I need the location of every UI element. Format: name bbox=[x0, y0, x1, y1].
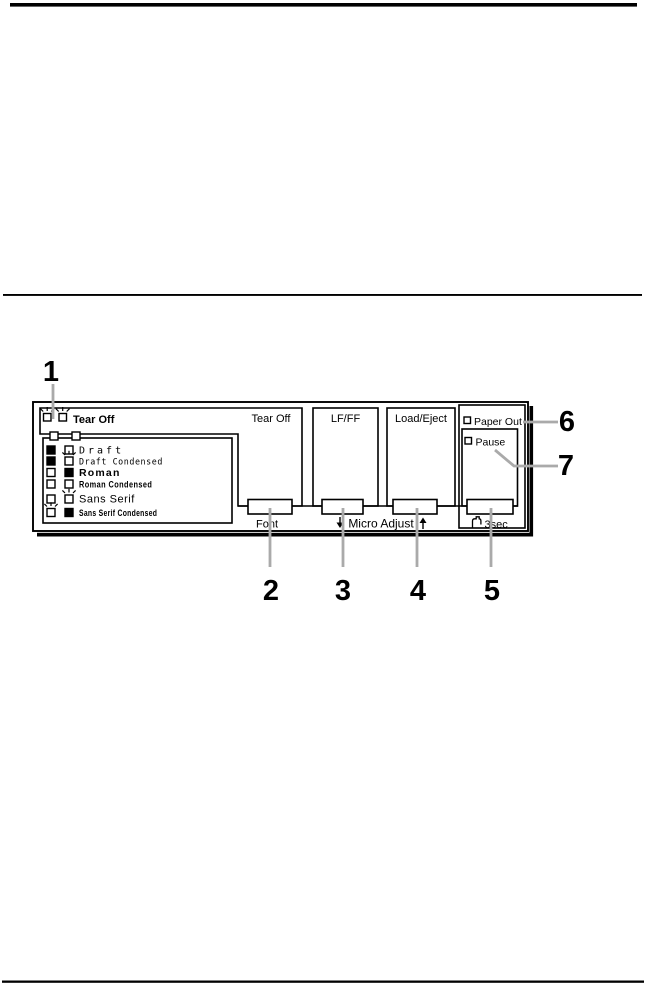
tear-off-led-2 bbox=[59, 414, 67, 422]
load-eject-button bbox=[393, 500, 437, 515]
font-row-label: Roman Condensed bbox=[79, 480, 152, 490]
font-row-led bbox=[65, 509, 73, 517]
bottom-rule bbox=[2, 981, 644, 983]
lf-ff-button-label: LF/FF bbox=[331, 413, 361, 425]
font-row-led bbox=[65, 495, 73, 503]
font-row-led bbox=[47, 446, 55, 454]
font-table-led-column-1-marker bbox=[50, 432, 58, 440]
font-row-label: Sans Serif bbox=[79, 494, 135, 506]
font-table-led-column-2-marker bbox=[72, 432, 80, 440]
font-row-label: Roman bbox=[79, 467, 121, 479]
panel-shadow-right bbox=[530, 406, 534, 537]
font-row-label: Sans Serif Condensed bbox=[79, 508, 157, 518]
font-row-led bbox=[47, 480, 55, 488]
font-row-led bbox=[47, 457, 55, 465]
hold-duration-label: 3sec bbox=[485, 519, 509, 531]
callout-number-3: 3 bbox=[335, 575, 351, 607]
tear-off-led-1 bbox=[44, 414, 52, 422]
tear-off-indicator-label: Tear Off bbox=[73, 414, 115, 426]
pause-led-label: Pause bbox=[476, 437, 506, 449]
section-rule bbox=[3, 294, 642, 296]
font-row-led bbox=[47, 509, 55, 517]
pause-led bbox=[465, 438, 472, 445]
font-sublabel: Font bbox=[256, 519, 278, 531]
font-row-led bbox=[47, 469, 55, 477]
font-row-led bbox=[65, 480, 73, 488]
panel-shadow-bottom bbox=[37, 533, 533, 537]
font-row-led bbox=[65, 457, 73, 465]
callout-number-6: 6 bbox=[559, 406, 575, 438]
callout-number-4: 4 bbox=[410, 575, 426, 607]
callout-number-7: 7 bbox=[558, 450, 574, 482]
manual-page: Tear Off Draft Draft Condensed Roman Rom… bbox=[0, 0, 646, 988]
top-rule bbox=[10, 3, 637, 7]
font-row-label: Draft bbox=[79, 446, 124, 457]
control-panel-figure: Tear Off Draft Draft Condensed Roman Rom… bbox=[0, 0, 646, 988]
paper-out-led bbox=[464, 417, 471, 424]
font-row-led bbox=[47, 495, 55, 503]
paper-out-led-label: Paper Out bbox=[474, 416, 522, 428]
tear-off-button-label: Tear Off bbox=[252, 413, 292, 425]
load-eject-button-label: Load/Eject bbox=[395, 413, 447, 425]
callout-number-5: 5 bbox=[484, 575, 500, 607]
font-row-led bbox=[65, 469, 73, 477]
micro-adjust-label: Micro Adjust bbox=[348, 517, 414, 531]
callout-number-2: 2 bbox=[263, 575, 279, 607]
callout-number-1: 1 bbox=[43, 356, 59, 388]
